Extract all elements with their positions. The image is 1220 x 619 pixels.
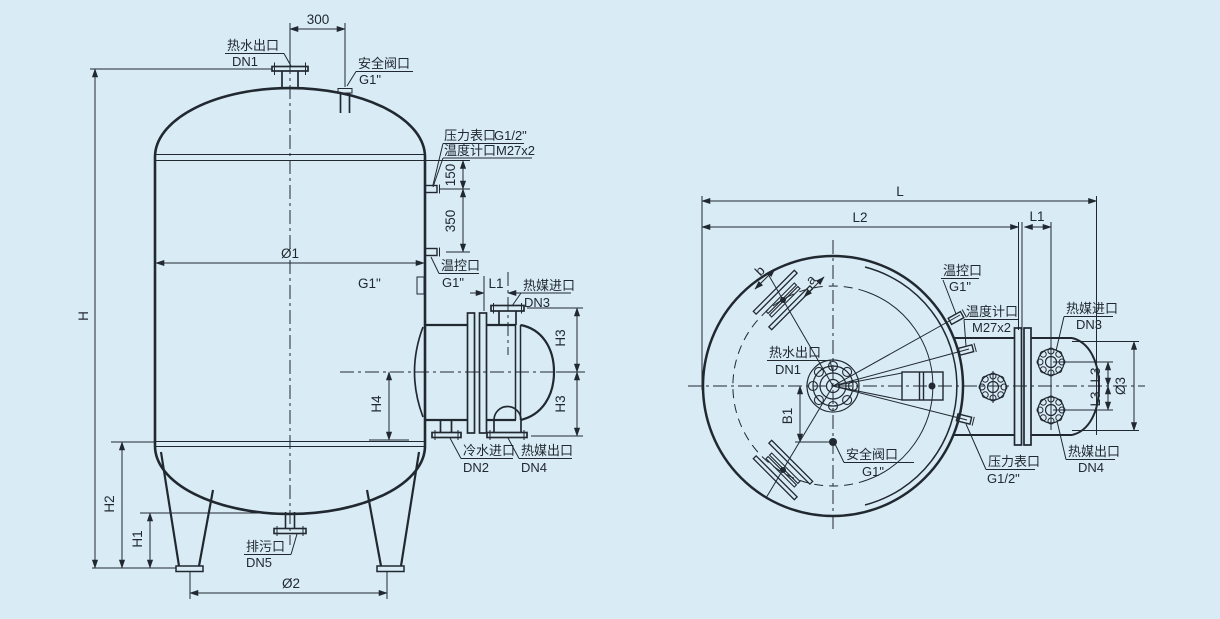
plan-heat-medium-outlet-label: 热媒出口 [1068,444,1120,459]
hot-water-outlet-nozzle [272,63,308,89]
plan-safety-valve-size: G1" [862,464,884,479]
safety-valve-label: 安全阀口 [358,56,410,71]
dim-L3-lower: L3 [1088,391,1103,406]
dim-dia1: Ø1 [281,246,299,261]
pressure-gauge-size: G1/2" [494,128,527,143]
dim-L1-front: L1 [488,276,503,291]
drain-size: DN5 [246,555,272,570]
hot-water-outlet-size: DN1 [232,54,258,69]
plan-hot-water-size: DN1 [775,362,801,377]
heat-medium-outlet-size: DN4 [521,460,547,475]
plan-thermometer-size: M27x2 [972,320,1011,335]
dim-B1: B1 [780,408,795,425]
dim-H3-upper: H3 [553,329,568,346]
leg-assembly-lower [753,440,812,499]
thermometer-label: 温度计口 [444,143,496,158]
mid-coupling-size: G1" [358,276,381,291]
plan-temp-control-size: G1" [949,279,971,294]
dim-L3-upper: L3 [1088,367,1103,382]
dim-L: L [896,184,904,199]
dim-H3-lower: H3 [553,395,568,412]
internal-bracket [417,277,424,294]
plan-heat-medium-inlet-size: DN3 [1076,317,1102,332]
top-view: b a [688,184,1145,532]
plan-pressure-gauge-label: 压力表口 [988,454,1040,469]
thermometer-size: M27x2 [496,143,535,158]
front-view: 300 H H2 H1 Ø2 Ø1 G1" [76,12,585,599]
safety-valve-size: G1" [359,72,381,87]
plan-heat-medium-outlet-size: DN4 [1078,460,1104,475]
plan-flange-dn2 [979,371,1007,403]
gauge-nozzles [425,185,440,257]
tank-plan-circles [688,240,1145,532]
plan-temp-control-label: 温控口 [943,263,982,278]
drain-label: 排污口 [246,539,285,554]
heat-medium-outlet-label: 热媒出口 [521,443,573,458]
dim-L1-plan: L1 [1029,209,1044,224]
temp-control-size: G1" [442,275,464,290]
pressure-gauge-label: 压力表口 [444,128,496,143]
dim-a: a [803,272,819,288]
hot-water-outlet-label: 热水出口 [227,38,279,53]
cold-water-inlet-label: 冷水进口 [463,443,515,458]
vessel-technical-drawing: 300 H H2 H1 Ø2 Ø1 G1" [0,0,1220,619]
heat-medium-inlet-size: DN3 [524,295,550,310]
temp-control-label: 温控口 [441,258,480,273]
plan-thermometer-label: 温度计口 [966,304,1018,319]
dim-150: 150 [443,164,458,187]
dim-300: 300 [307,12,330,27]
dim-H: H [76,311,91,321]
dim-H1: H1 [130,530,145,547]
plan-heat-medium-inlet-label: 热媒进口 [1066,301,1118,316]
dim-H2: H2 [102,495,117,512]
plan-safety-valve-label: 安全阀口 [846,447,898,462]
cold-water-inlet-size: DN2 [463,460,489,475]
dim-350: 350 [443,210,458,233]
dim-H4: H4 [369,395,384,413]
drawing-canvas: 300 H H2 H1 Ø2 Ø1 G1" [0,0,1220,619]
dim-dia3: Ø3 [1113,377,1128,395]
plan-pressure-gauge-size: G1/2" [987,471,1020,486]
heat-medium-inlet-label: 热媒进口 [523,278,575,293]
dim-dia2: Ø2 [282,576,300,591]
plan-hot-water-label: 热水出口 [769,345,821,360]
dim-L2: L2 [852,210,867,225]
tank-outline [155,60,425,545]
